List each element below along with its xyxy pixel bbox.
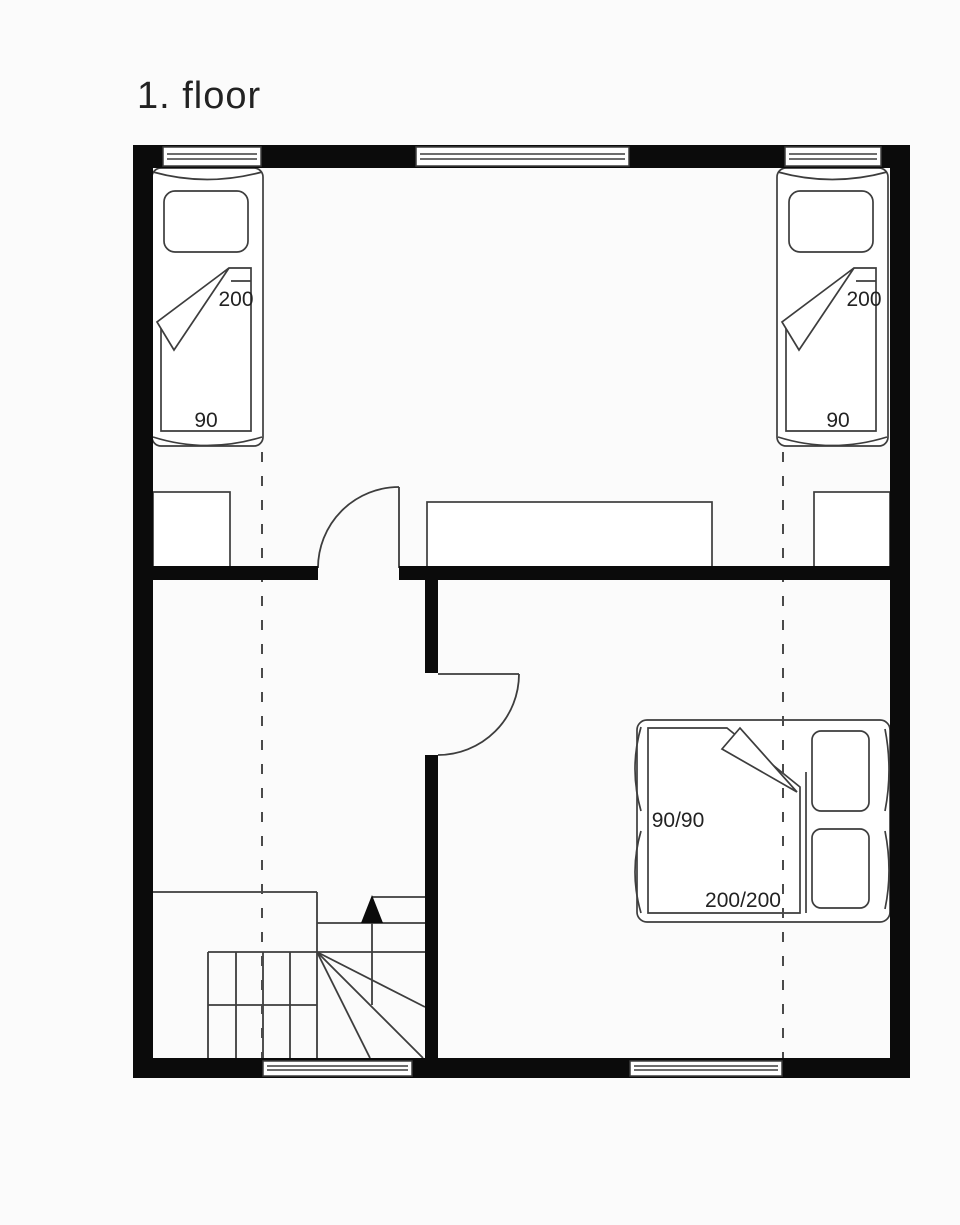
- bed-left-length-label: 200: [218, 288, 253, 311]
- bed-left-width-label: 90: [194, 409, 217, 432]
- bed-pillow-bottom: [812, 829, 869, 908]
- windows: [163, 147, 881, 1076]
- stair-winder-tread: [317, 952, 370, 1058]
- door-swing-arc: [438, 674, 519, 755]
- stair-direction-arrow-icon: [361, 895, 383, 923]
- floor-plan-drawing: 1. floor 200 90 200 90 90/90 200/200: [0, 0, 960, 1225]
- bed-right-length-label: 200: [846, 288, 881, 311]
- staircase: [153, 892, 425, 1058]
- hall-door: [318, 487, 399, 568]
- sideboard-desk: [427, 502, 712, 568]
- double-bed-pillow-label: 90/90: [652, 809, 705, 832]
- wall-left: [133, 145, 153, 1078]
- bottom-right-window-icon: [630, 1061, 782, 1076]
- floor-plan: 1. floor 200 90 200 90 90/90 200/200: [0, 0, 960, 1225]
- furniture: [152, 168, 890, 922]
- top-left-window-icon: [163, 147, 261, 166]
- stair-winder-tread: [317, 952, 423, 1058]
- double-bed-size-label: 200/200: [705, 889, 781, 912]
- bed-pillow-top: [812, 731, 869, 811]
- dresser-right: [814, 492, 890, 568]
- wall-middle-right-segment: [399, 566, 890, 580]
- door-swing-arc: [318, 487, 399, 568]
- wall-interior-vertical-upper: [425, 580, 438, 673]
- wall-interior-vertical-lower: [425, 755, 438, 1058]
- stair-winder-tread: [317, 952, 425, 1007]
- wall-bottom: [133, 1058, 910, 1078]
- bottom-left-window-icon: [263, 1061, 412, 1076]
- bed-pillow: [164, 191, 248, 252]
- bedroom-door: [438, 674, 519, 755]
- wall-right: [890, 145, 910, 1078]
- wall-middle-left-segment: [153, 566, 318, 580]
- floor-title: 1. floor: [137, 75, 261, 117]
- top-center-window-icon: [416, 147, 629, 166]
- bed-right-width-label: 90: [826, 409, 849, 432]
- top-right-window-icon: [785, 147, 881, 166]
- dresser-left: [153, 492, 230, 568]
